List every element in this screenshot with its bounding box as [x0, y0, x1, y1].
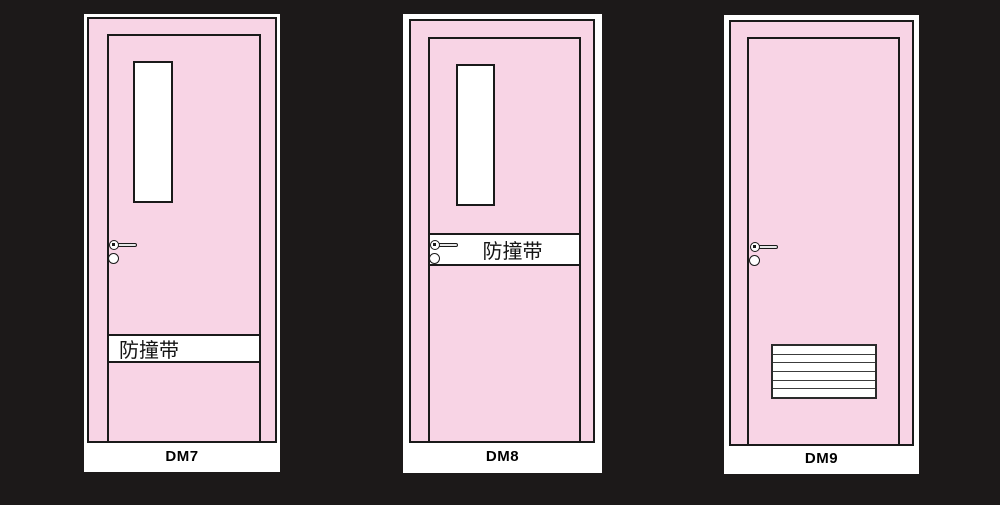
handle-bar	[438, 243, 458, 248]
lever-handle-icon	[109, 240, 119, 250]
door-leaf	[107, 34, 261, 441]
lock-knob-icon	[108, 253, 119, 264]
door-frame: 防撞带	[409, 19, 595, 443]
louver-slat	[773, 362, 875, 371]
lock-knob-icon	[749, 255, 760, 266]
door-card-dm9: DM9	[724, 15, 919, 474]
door-code-label: DM8	[403, 448, 602, 465]
handle-bar	[758, 245, 778, 250]
lever-handle-icon	[750, 242, 760, 252]
louver-slat	[773, 388, 875, 397]
louver-slat	[773, 380, 875, 389]
vent-louver	[771, 344, 877, 399]
door-code-label: DM7	[84, 448, 280, 465]
anti-collision-band: 防撞带	[107, 334, 261, 363]
lever-handle-icon	[430, 240, 440, 250]
lock-knob-icon	[429, 253, 440, 264]
door-frame	[729, 20, 914, 446]
anti-collision-band: 防撞带	[428, 233, 581, 266]
louver-slat	[773, 346, 875, 354]
door-code-label: DM9	[724, 450, 919, 467]
door-card-dm7: 防撞带 DM7	[84, 14, 280, 472]
band-label: 防撞带	[483, 235, 543, 264]
handle-bar	[117, 243, 137, 248]
louver-slat	[773, 371, 875, 380]
door-window-glass	[456, 64, 495, 206]
door-window-glass	[133, 61, 173, 203]
band-label: 防撞带	[119, 334, 179, 363]
door-catalog-canvas: 防撞带 DM7 防撞带 DM8 DM9	[0, 0, 1000, 505]
door-frame: 防撞带	[87, 17, 277, 443]
door-card-dm8: 防撞带 DM8	[403, 14, 602, 473]
louver-slat	[773, 354, 875, 363]
